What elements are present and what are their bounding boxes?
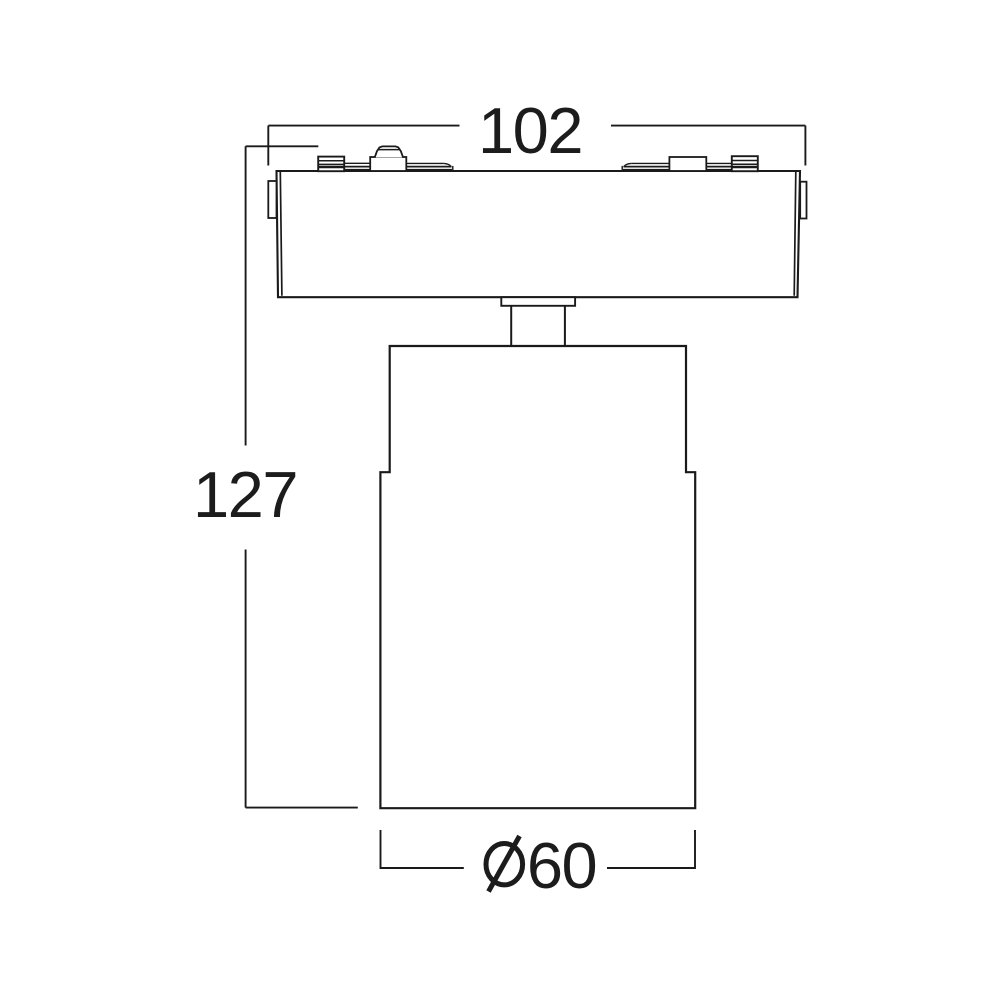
svg-text:102: 102 [478,94,582,167]
svg-text:127: 127 [193,458,297,531]
svg-text:60: 60 [527,829,596,902]
